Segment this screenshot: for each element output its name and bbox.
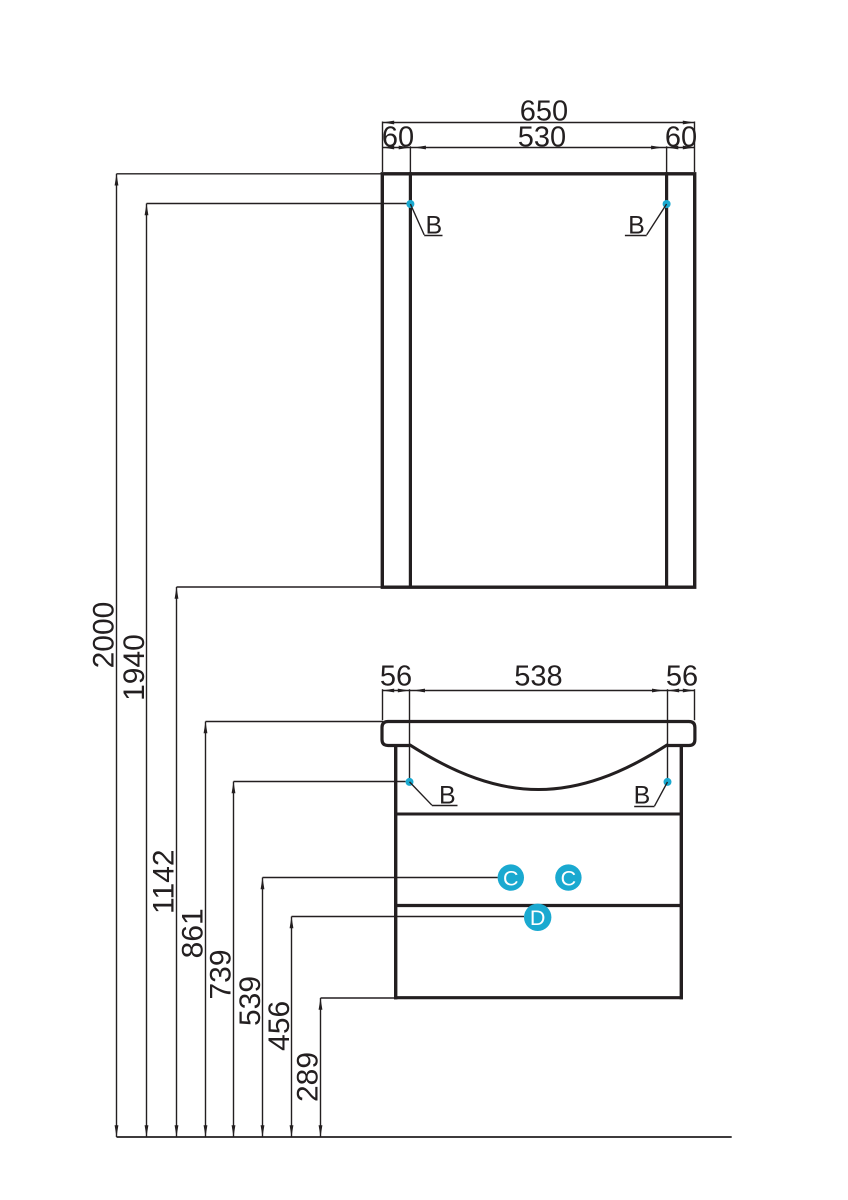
- svg-text:56: 56: [380, 661, 412, 693]
- svg-text:D: D: [530, 906, 546, 930]
- svg-text:C: C: [561, 866, 577, 890]
- svg-text:538: 538: [514, 661, 562, 693]
- svg-text:2000: 2000: [88, 602, 121, 669]
- svg-text:C: C: [503, 866, 519, 890]
- svg-text:B: B: [628, 211, 645, 239]
- svg-text:289: 289: [292, 1052, 325, 1102]
- svg-text:56: 56: [666, 661, 698, 693]
- svg-text:1142: 1142: [148, 849, 181, 914]
- svg-text:1940: 1940: [118, 634, 151, 701]
- svg-text:530: 530: [518, 122, 566, 154]
- svg-text:456: 456: [263, 1001, 296, 1051]
- svg-text:60: 60: [665, 122, 697, 154]
- svg-text:B: B: [439, 782, 456, 810]
- svg-text:B: B: [425, 211, 442, 239]
- svg-text:B: B: [634, 782, 651, 810]
- svg-text:739: 739: [205, 949, 238, 999]
- svg-text:60: 60: [382, 122, 414, 154]
